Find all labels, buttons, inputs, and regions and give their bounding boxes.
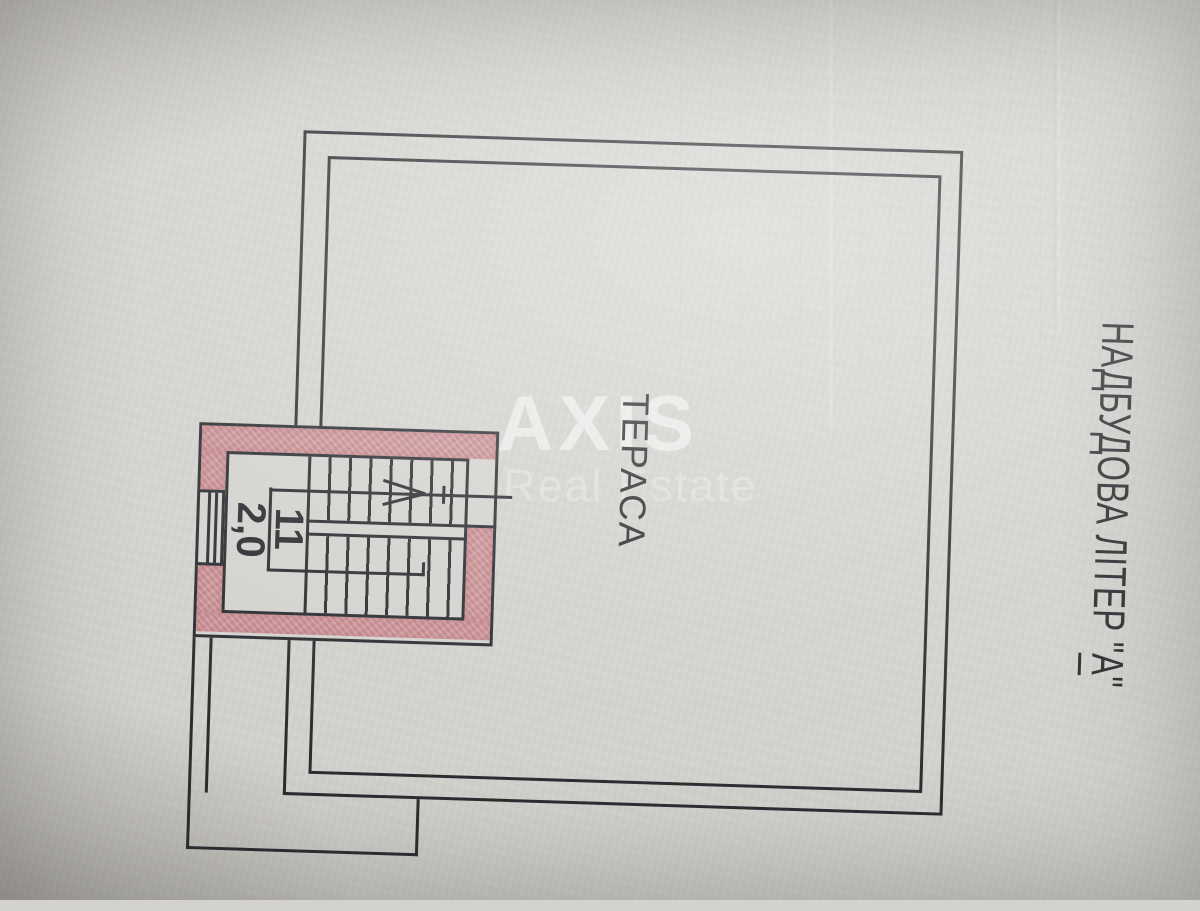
wall-niche-divider [213,493,218,563]
stair-direction-tick-lower [422,562,425,576]
lower-level-outline-bottom [186,846,418,856]
stair-direction-tick-upper [442,486,446,504]
stairwell-block: 11 2,0 [193,422,500,646]
lower-level-outline-left [186,637,196,849]
paper-crease [1052,0,1062,330]
building-label-suffix: " [1081,675,1132,689]
lower-level-outline-right [415,799,420,856]
lower-level-outline-left-inner [205,638,213,793]
wall-niche [195,489,225,566]
building-label-prefix: НАДБУДОВА ЛІТЕР " [1082,321,1143,654]
stair-treads-lower-flight [306,536,463,618]
stairwell-wall-left [196,565,222,613]
wall-niche-divider [206,492,211,562]
building-letter: А [1078,653,1134,677]
floor-plan-drawing: 11 2,0 ТЕРАСА [175,85,1030,911]
stairwell-wall-right [464,528,493,622]
floor-plan-photo: { "document": { "plan": { "terrace_label… [0,0,1200,900]
stairwell-wall-left [200,450,226,490]
